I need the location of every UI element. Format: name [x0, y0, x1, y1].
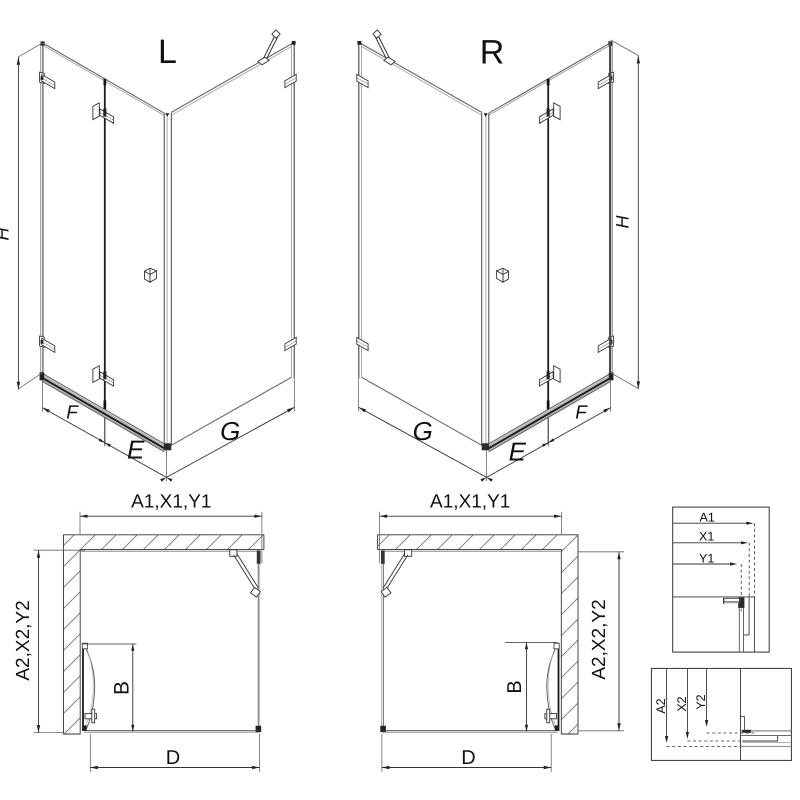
svg-text:Y2: Y2: [694, 694, 708, 709]
svg-text:H: H: [0, 227, 13, 241]
svg-text:G: G: [220, 416, 240, 446]
svg-text:B: B: [111, 681, 134, 695]
svg-text:G: G: [413, 416, 433, 446]
svg-text:D: D: [461, 747, 475, 769]
svg-text:A2,X2,Y2: A2,X2,Y2: [13, 600, 34, 680]
svg-text:X1: X1: [699, 530, 714, 544]
svg-text:H: H: [612, 215, 632, 229]
svg-text:E: E: [509, 437, 527, 467]
svg-text:L: L: [158, 33, 177, 71]
svg-text:A1,X1,Y1: A1,X1,Y1: [430, 492, 510, 513]
svg-text:A1,X1,Y1: A1,X1,Y1: [131, 492, 211, 513]
svg-text:D: D: [166, 747, 180, 769]
svg-text:A2,X2,Y2: A2,X2,Y2: [589, 599, 610, 679]
svg-text:X2: X2: [675, 696, 689, 711]
svg-text:F: F: [66, 403, 79, 424]
svg-text:A2: A2: [654, 698, 668, 713]
svg-text:Y1: Y1: [699, 552, 714, 566]
svg-text:E: E: [127, 434, 145, 464]
svg-text:B: B: [504, 680, 526, 693]
svg-text:R: R: [480, 34, 505, 72]
svg-text:A1: A1: [700, 511, 715, 525]
svg-text:F: F: [575, 403, 588, 424]
